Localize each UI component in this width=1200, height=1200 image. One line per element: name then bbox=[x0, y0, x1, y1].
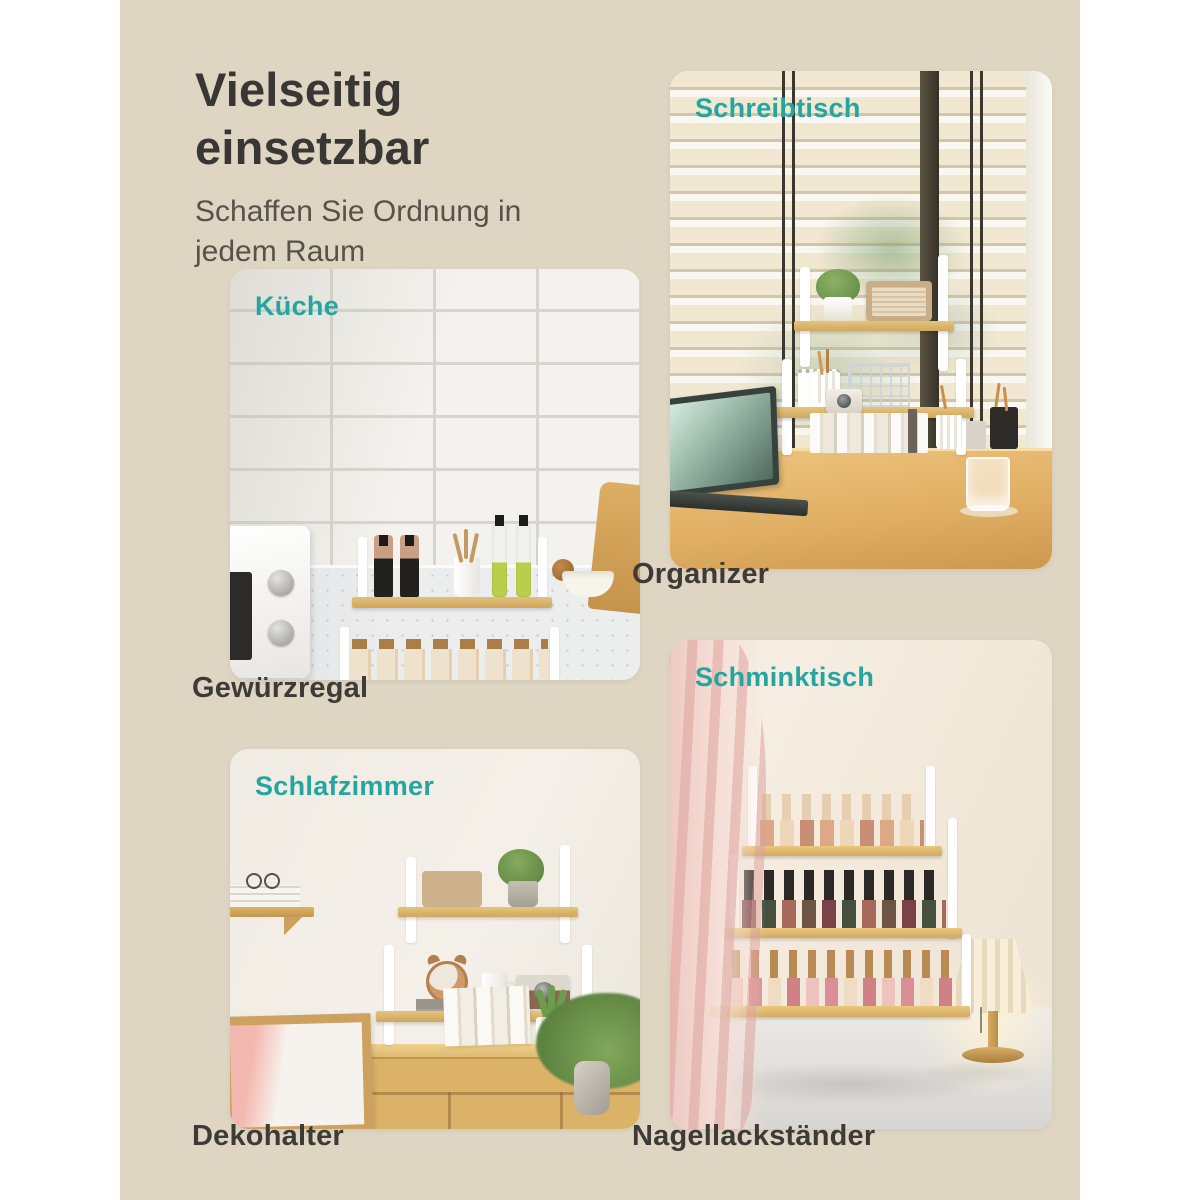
laptop-display bbox=[670, 393, 773, 492]
polish-caps-row1 bbox=[762, 794, 922, 820]
microwave-knob bbox=[268, 570, 294, 596]
room-label-schminktisch: Schminktisch bbox=[695, 662, 874, 693]
bamboo-shelf bbox=[742, 846, 942, 856]
utensil bbox=[464, 529, 468, 559]
oil-bottle bbox=[492, 525, 507, 597]
rack-post bbox=[550, 627, 559, 680]
pen-holders bbox=[936, 403, 1022, 449]
rack-post bbox=[938, 255, 948, 371]
water-glass bbox=[966, 457, 1010, 511]
product-photo-vanity: Schminktisch bbox=[670, 640, 1052, 1129]
plant-pot bbox=[824, 297, 852, 321]
rack-post bbox=[926, 766, 935, 852]
rack-post bbox=[406, 857, 416, 943]
pink-curtain bbox=[670, 640, 766, 1129]
product-photo-desk: Schreibtisch bbox=[670, 71, 1052, 569]
caption-organizer: Organizer bbox=[632, 558, 769, 591]
rack-post bbox=[384, 945, 394, 1045]
polish-bottles-row2 bbox=[742, 900, 946, 928]
product-photo-bedroom: Schlafzimmer bbox=[230, 749, 640, 1129]
caption-nagellackstaender: Nagellackständer bbox=[632, 1120, 875, 1153]
room-label-schreibtisch: Schreibtisch bbox=[695, 93, 861, 124]
bamboo-shelf bbox=[794, 321, 954, 331]
radio-grille bbox=[427, 876, 477, 902]
pepper-bottle bbox=[400, 535, 419, 597]
oil-bottle bbox=[516, 525, 531, 597]
vase bbox=[574, 1061, 610, 1115]
lamp-pull-chain bbox=[980, 1007, 982, 1033]
room-label-kueche: Küche bbox=[255, 291, 339, 322]
book bbox=[908, 409, 917, 453]
pen-cup bbox=[936, 415, 962, 449]
radio-grille bbox=[872, 287, 926, 316]
curtain-folds bbox=[670, 640, 766, 1129]
plant-pot bbox=[508, 881, 538, 907]
camera bbox=[826, 389, 862, 413]
pen-holder-dark bbox=[990, 407, 1018, 449]
pen-cup bbox=[966, 421, 986, 449]
polish-bottles-row1 bbox=[760, 820, 924, 846]
rack-post bbox=[560, 845, 570, 943]
caption-gewuerzregal: Gewürzregal bbox=[192, 672, 368, 705]
page-title: Vielseitig einsetzbar bbox=[195, 61, 525, 176]
bamboo-shelf bbox=[398, 907, 578, 917]
bamboo-shelf bbox=[352, 597, 552, 608]
microwave-door bbox=[230, 572, 252, 660]
spice-rack bbox=[322, 387, 562, 637]
clock-bell bbox=[426, 953, 440, 965]
picture-frame bbox=[230, 1013, 374, 1129]
radio bbox=[866, 281, 932, 321]
leaning-books bbox=[443, 986, 531, 1047]
radio bbox=[422, 871, 482, 907]
page-subtitle: Schaffen Sie Ordnung in jedem Raum bbox=[195, 192, 590, 272]
lamp-base bbox=[962, 1047, 1024, 1063]
room-label-schlafzimmer: Schlafzimmer bbox=[255, 771, 434, 802]
rack-post bbox=[800, 267, 810, 367]
pencil bbox=[826, 349, 829, 373]
camera-lens bbox=[837, 394, 851, 408]
spice-jars bbox=[350, 649, 550, 680]
pepper-bottle bbox=[374, 535, 393, 597]
utensil-crock bbox=[454, 557, 480, 597]
laptop-screen bbox=[670, 386, 779, 498]
microwave bbox=[230, 526, 310, 678]
caption-dekohalter: Dekohalter bbox=[192, 1120, 344, 1153]
lamp-stem bbox=[988, 1011, 998, 1051]
product-photo-kitchen: Küche bbox=[230, 269, 640, 680]
clock-bell bbox=[454, 953, 468, 965]
microwave-knob bbox=[268, 620, 294, 646]
pencil bbox=[817, 351, 823, 375]
polish-caps-row2 bbox=[744, 870, 944, 900]
rack-post bbox=[962, 934, 971, 1014]
rack-post bbox=[948, 818, 957, 938]
